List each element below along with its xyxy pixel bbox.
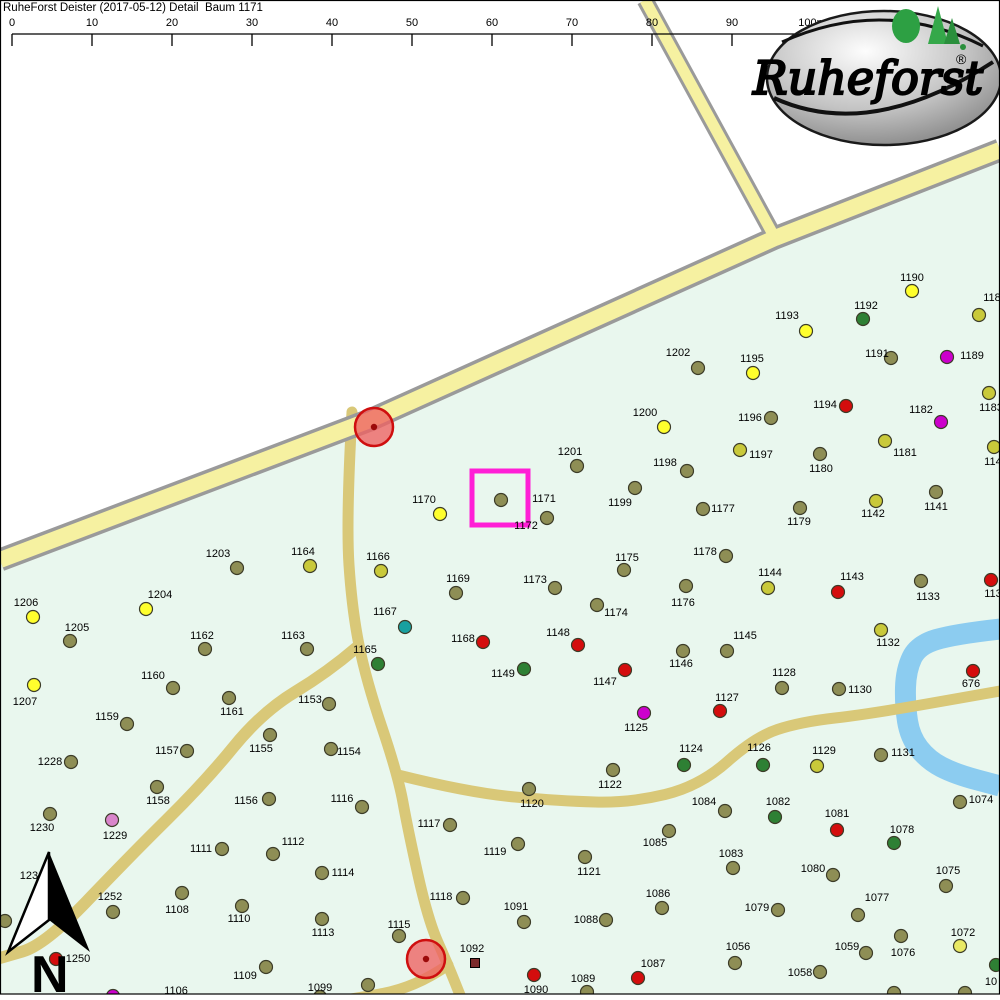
- tree-dot[interactable]: [167, 682, 180, 695]
- tree-label: 1091: [504, 901, 528, 913]
- tree-dot[interactable]: [658, 421, 671, 434]
- tree-dot[interactable]: [450, 587, 463, 600]
- tree-label: 1146: [669, 658, 693, 670]
- tree-label: 1088: [574, 914, 598, 926]
- tree-label: 1122: [598, 779, 622, 791]
- tree-dot[interactable]: [600, 914, 613, 927]
- tree-label: 1113: [312, 927, 335, 939]
- tree-label: 1203: [206, 548, 230, 560]
- forest-map[interactable]: 1190119211811911189118311821181114011941…: [0, 0, 1000, 1000]
- tree-label: 1099: [308, 982, 332, 994]
- tree-dot[interactable]: [107, 906, 120, 919]
- tree-dot[interactable]: [678, 759, 691, 772]
- tree-label: 1077: [865, 892, 889, 904]
- tree-dot[interactable]: [719, 805, 732, 818]
- tree-dot[interactable]: [983, 387, 996, 400]
- tree-dot[interactable]: [618, 564, 631, 577]
- tree-label: 1056: [726, 941, 750, 953]
- tree-label: 1192: [854, 300, 878, 312]
- tree-dot[interactable]: [301, 643, 314, 656]
- tree-label: 1132: [876, 637, 900, 649]
- tree-dot[interactable]: [827, 869, 840, 882]
- tree-dot[interactable]: [888, 837, 901, 850]
- tree-dot[interactable]: [840, 400, 853, 413]
- tree-label: 1072: [951, 927, 975, 939]
- tree-dot[interactable]: [579, 851, 592, 864]
- tree-label: 1075: [936, 865, 960, 877]
- tree-dot[interactable]: [954, 940, 967, 953]
- tree-dot[interactable]: [895, 930, 908, 943]
- tree-label: 1079: [745, 902, 769, 914]
- tree-label: 1195: [740, 353, 764, 365]
- tree-dot[interactable]: [860, 947, 873, 960]
- tree-dot[interactable]: [316, 867, 329, 880]
- tree-dot[interactable]: [814, 966, 827, 979]
- tree-dot[interactable]: [663, 825, 676, 838]
- tree-dot[interactable]: [680, 580, 693, 593]
- tree-label: 1205: [65, 622, 89, 634]
- tree-label: 1117: [418, 818, 441, 830]
- tree-label: 1181: [893, 447, 917, 459]
- tree-dot[interactable]: [677, 645, 690, 658]
- map-title: RuheForst Deister (2017-05-12) Detail Ba…: [3, 2, 263, 14]
- tree-dot[interactable]: [399, 621, 412, 634]
- tree-label: 1173: [523, 574, 547, 586]
- tree-label: 1191: [865, 348, 889, 360]
- tree-dot[interactable]: [64, 635, 77, 648]
- tree-label: 1177: [711, 503, 735, 515]
- tree-label: 1128: [772, 667, 796, 679]
- tree-label: 1199: [608, 497, 632, 509]
- tree-dot[interactable]: [375, 565, 388, 578]
- tree-label: 1161: [220, 706, 244, 718]
- tree-label: 1058: [788, 967, 812, 979]
- tree-dot[interactable]: [65, 756, 78, 769]
- tree-dot[interactable]: [181, 745, 194, 758]
- tree-dot[interactable]: [176, 887, 189, 900]
- tree-label: 1174: [604, 607, 628, 619]
- tree-label: 1190: [900, 272, 924, 284]
- north-label: N: [31, 946, 69, 1000]
- tree-label: 1183: [979, 402, 1000, 414]
- tree-dot[interactable]: [236, 900, 249, 913]
- tree-label: 1141: [924, 501, 948, 513]
- tree-label: 1110: [228, 913, 251, 925]
- tree-dot[interactable]: [591, 599, 604, 612]
- tree-dot[interactable]: [762, 582, 775, 595]
- tree-label: 1155: [249, 743, 273, 755]
- tree-label: 1154: [337, 746, 361, 758]
- tree-label: 1125: [624, 722, 648, 734]
- tree-dot[interactable]: [619, 664, 632, 677]
- logo-text: Ruheforst: [752, 51, 983, 105]
- tree-dot[interactable]: [954, 796, 967, 809]
- tree-dot[interactable]: [831, 824, 844, 837]
- tree-label: 1182: [909, 404, 933, 416]
- tree-dot[interactable]: [697, 503, 710, 516]
- tree-label: 1193: [775, 310, 799, 322]
- tree-label: 1175: [615, 552, 639, 564]
- tree-dot[interactable]: [973, 309, 986, 322]
- tree-label: 1116: [331, 793, 354, 805]
- tree-dot[interactable]: [223, 692, 236, 705]
- tree-dot[interactable]: [941, 351, 954, 364]
- tree-label: 1197: [749, 449, 773, 461]
- tree-dot[interactable]: [638, 707, 651, 720]
- tree-label: 1202: [666, 347, 690, 359]
- tree-dot[interactable]: [930, 486, 943, 499]
- tree-label: 1200: [633, 407, 657, 419]
- tree-dot[interactable]: [757, 759, 770, 772]
- tree-label: 1080: [801, 863, 825, 875]
- tree-label: 1163: [281, 630, 305, 642]
- tree-dot[interactable]: [794, 502, 807, 515]
- tree-label: 1171: [532, 493, 556, 505]
- tree-dot[interactable]: [988, 441, 1000, 454]
- tree-label: 1229: [103, 830, 127, 842]
- tree-dot[interactable]: [231, 562, 244, 575]
- tree-label: 1157: [155, 745, 179, 757]
- tree-dot[interactable]: [857, 313, 870, 326]
- scale-tick-label: 50: [406, 17, 418, 29]
- tree-dot[interactable]: [216, 843, 229, 856]
- tree-label: 1114: [332, 867, 355, 879]
- tree-dot[interactable]: [444, 819, 457, 832]
- tree-label: 1083: [719, 848, 743, 860]
- tree-label: 1082: [766, 796, 790, 808]
- tree-label: 1169: [446, 573, 470, 585]
- scale-tick-label: 60: [486, 17, 498, 29]
- tree-label: 113: [984, 588, 1000, 600]
- tree-dot[interactable]: [833, 683, 846, 696]
- tree-label: 1153: [298, 694, 322, 706]
- tree-label: 1112: [282, 836, 305, 848]
- logo-tree-dot-icon: [960, 44, 966, 50]
- tree-label: 1180: [809, 463, 833, 475]
- tree-label: 1074: [969, 794, 993, 806]
- tree-label: 1120: [520, 798, 544, 810]
- tree-label: 1144: [758, 567, 782, 579]
- tree-label: 1179: [787, 516, 811, 528]
- tree-dot[interactable]: [870, 495, 883, 508]
- tree-label: 1133: [916, 591, 940, 603]
- tree-label: 1111: [190, 843, 212, 855]
- tree-dot[interactable]: [800, 325, 813, 338]
- tree-dot[interactable]: [523, 783, 536, 796]
- tree-dot[interactable]: [990, 959, 1000, 972]
- tree-dot[interactable]: [734, 444, 747, 457]
- tree-label: 1124: [679, 743, 703, 755]
- tree-label: 1201: [558, 446, 582, 458]
- tree-label: 1230: [30, 822, 54, 834]
- tree-label: 1109: [233, 970, 257, 982]
- tree-label: 1147: [593, 676, 617, 688]
- tree-dot[interactable]: [27, 611, 40, 624]
- tree-square-marker[interactable]: [471, 959, 480, 968]
- tree-dot[interactable]: [121, 718, 134, 731]
- tree-label: 1129: [812, 745, 836, 757]
- tree-dot[interactable]: [304, 560, 317, 573]
- tree-dot[interactable]: [549, 582, 562, 595]
- scale-tick-label: 10: [86, 17, 98, 29]
- tree-label: 1166: [366, 551, 390, 563]
- tree-dot[interactable]: [681, 465, 694, 478]
- tree-label: 1252: [98, 891, 122, 903]
- tree-label: 1167: [373, 606, 397, 618]
- scale-tick-label: 90: [726, 17, 738, 29]
- tree-label: 1086: [646, 888, 670, 900]
- tree-label: 1164: [291, 546, 315, 558]
- tree-dot[interactable]: [776, 682, 789, 695]
- tree-dot[interactable]: [875, 624, 888, 637]
- scale-tick-label: 40: [326, 17, 338, 29]
- scale-tick-label: 30: [246, 17, 258, 29]
- tree-dot[interactable]: [528, 969, 541, 982]
- tree-label: 1078: [890, 824, 914, 836]
- tree-dot[interactable]: [772, 904, 785, 917]
- tree-dot[interactable]: [199, 643, 212, 656]
- tree-label: 1162: [190, 630, 214, 642]
- tree-dot[interactable]: [263, 793, 276, 806]
- tree-label: 1196: [738, 412, 762, 424]
- tree-label: 1168: [451, 633, 475, 645]
- tree-dot[interactable]: [572, 639, 585, 652]
- tree-dot[interactable]: [852, 909, 865, 922]
- scale-tick-label: 70: [566, 17, 578, 29]
- tree-label: 1165: [353, 644, 377, 656]
- tree-dot[interactable]: [457, 892, 470, 905]
- tree-dot[interactable]: [720, 550, 733, 563]
- tree-label: 1084: [692, 796, 716, 808]
- tree-dot[interactable]: [747, 367, 760, 380]
- tree-label: 1156: [234, 795, 258, 807]
- tree-label: 1194: [813, 399, 837, 411]
- tree-dot[interactable]: [541, 512, 554, 525]
- tree-label: 118: [983, 292, 1000, 304]
- tree-label: 1140: [984, 456, 1000, 468]
- logo-registered-mark: ®: [956, 51, 967, 67]
- tree-dot[interactable]: [729, 957, 742, 970]
- tree-label: 1121: [577, 866, 601, 878]
- tree-dot[interactable]: [765, 412, 778, 425]
- tree-label: 1149: [491, 668, 515, 680]
- tree-dot[interactable]: [316, 913, 329, 926]
- tree-label: 1081: [825, 808, 849, 820]
- tree-dot[interactable]: [518, 663, 531, 676]
- tree-dot[interactable]: [140, 603, 153, 616]
- tree-dot[interactable]: [44, 808, 57, 821]
- tree-label: 1092: [460, 943, 484, 955]
- tree-label: 1189: [960, 350, 984, 362]
- tree-dot[interactable]: [264, 729, 277, 742]
- tree-label: 1118: [430, 891, 453, 903]
- tree-dot[interactable]: [967, 665, 980, 678]
- tree-label: 1126: [747, 742, 771, 754]
- tree-label: 1178: [693, 546, 717, 558]
- scale-tick-label: 0: [9, 17, 15, 29]
- tree-dot[interactable]: [714, 705, 727, 718]
- tree-dot[interactable]: [512, 838, 525, 851]
- tree-dot[interactable]: [940, 880, 953, 893]
- tree-label: 1170: [412, 494, 436, 506]
- grave-marker-core: [423, 956, 429, 962]
- tree-dot[interactable]: [325, 743, 338, 756]
- tree-dot[interactable]: [727, 862, 740, 875]
- tree-label: 1145: [733, 630, 757, 642]
- tree-dot[interactable]: [260, 961, 273, 974]
- tree-dot[interactable]: [106, 814, 119, 827]
- tree-label: 1176: [671, 597, 695, 609]
- tree-dot[interactable]: [879, 435, 892, 448]
- tree-dot[interactable]: [393, 930, 406, 943]
- tree-dot[interactable]: [906, 285, 919, 298]
- tree-dot[interactable]: [985, 574, 998, 587]
- tree-label: 1115: [388, 919, 411, 931]
- tree-dot[interactable]: [915, 575, 928, 588]
- tree-dot[interactable]: [629, 482, 642, 495]
- tree-label: 676: [962, 678, 980, 690]
- tree-label: 10: [985, 976, 997, 988]
- tree-label: 1059: [835, 941, 859, 953]
- tree-label: 1206: [14, 597, 38, 609]
- tree-dot[interactable]: [477, 636, 490, 649]
- tree-dot[interactable]: [935, 416, 948, 429]
- tree-label: 1158: [146, 795, 170, 807]
- tree-label: 1119: [484, 846, 507, 858]
- tree-label: 1089: [571, 973, 595, 985]
- tree-dot[interactable]: [811, 760, 824, 773]
- tree-dot[interactable]: [356, 801, 369, 814]
- tree-dot[interactable]: [769, 811, 782, 824]
- tree-label: 1085: [643, 837, 667, 849]
- tree-label: 1142: [861, 508, 885, 520]
- tree-label: 1250: [66, 953, 90, 965]
- tree-dot[interactable]: [434, 508, 447, 521]
- tree-label: 1076: [891, 947, 915, 959]
- bottom-margin: [0, 995, 1000, 1000]
- grave-marker-core: [371, 424, 377, 430]
- tree-dot[interactable]: [571, 460, 584, 473]
- tree-dot[interactable]: [267, 848, 280, 861]
- tree-dot[interactable]: [372, 658, 385, 671]
- tree-label: 1148: [546, 627, 570, 639]
- logo-tree-icon: [892, 9, 920, 43]
- tree-dot[interactable]: [0, 915, 12, 928]
- tree-dot[interactable]: [151, 781, 164, 794]
- tree-dot[interactable]: [721, 645, 734, 658]
- tree-dot[interactable]: [518, 916, 531, 929]
- tree-label: 1207: [13, 696, 37, 708]
- tree-label: 1172: [514, 520, 538, 532]
- scale-tick-label: 80: [646, 17, 658, 29]
- tree-dot[interactable]: [692, 362, 705, 375]
- tree-label: 1127: [715, 692, 739, 704]
- tree-label: 1198: [653, 457, 677, 469]
- tree-label: 1160: [141, 670, 165, 682]
- tree-label: 1159: [95, 711, 119, 723]
- tree-label: 1204: [148, 589, 172, 601]
- tree-dot[interactable]: [814, 448, 827, 461]
- scale-tick-label: 20: [166, 17, 178, 29]
- tree-dot[interactable]: [632, 972, 645, 985]
- tree-label: 1108: [165, 904, 189, 916]
- tree-dot[interactable]: [832, 586, 845, 599]
- tree-label: 1228: [38, 756, 62, 768]
- tree-dot[interactable]: [607, 764, 620, 777]
- tree-label: 1143: [840, 571, 864, 583]
- tree-label: 1131: [891, 747, 915, 759]
- tree-dot[interactable]: [656, 902, 669, 915]
- tree-dot[interactable]: [28, 679, 41, 692]
- tree-dot[interactable]: [362, 979, 375, 992]
- tree-dot[interactable]: [875, 749, 888, 762]
- tree-dot[interactable]: [495, 494, 508, 507]
- tree-label: 1130: [848, 684, 872, 696]
- tree-dot[interactable]: [323, 698, 336, 711]
- tree-label: 1087: [641, 958, 665, 970]
